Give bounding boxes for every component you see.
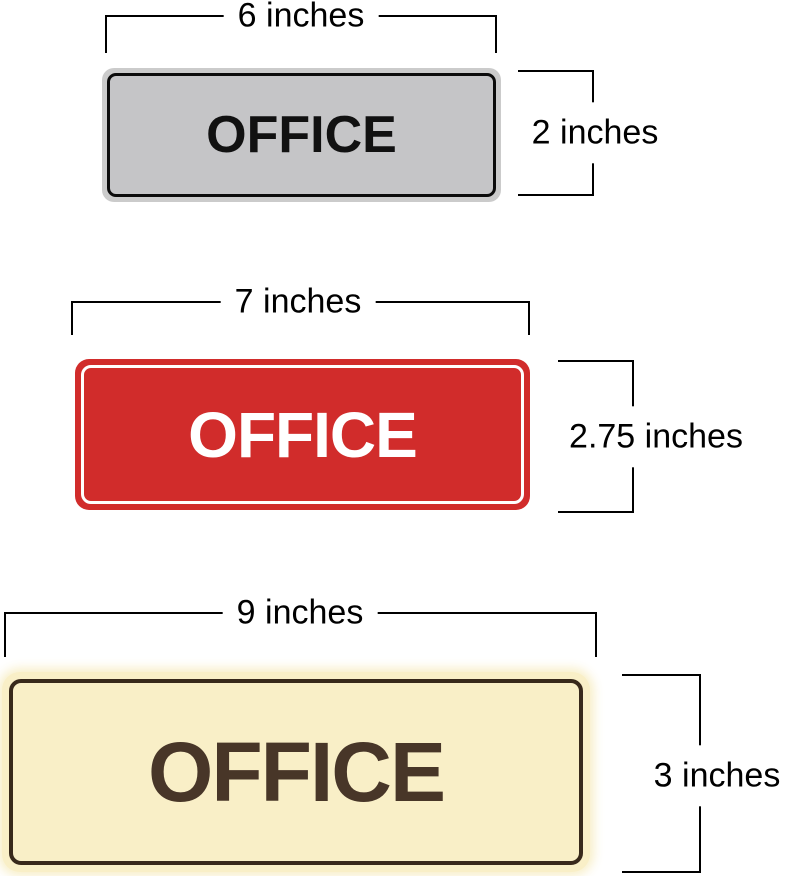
height-bracket-bottom-tick xyxy=(518,194,594,196)
product-dimension-figure: 6 inches OFFICE 2 inches 7 inches OFFICE… xyxy=(0,0,795,876)
office-sign-cream-face: OFFICE xyxy=(9,679,583,865)
width-bracket-right-tick xyxy=(595,612,597,657)
height-bracket-top-tick xyxy=(622,674,701,676)
height-bracket-top-tick xyxy=(558,360,634,362)
office-sign-gray-face: OFFICE xyxy=(107,73,496,197)
office-sign-red-text: OFFICE xyxy=(188,398,417,472)
width-bracket-right-tick xyxy=(528,301,530,335)
height-dimension-label: 2 inches xyxy=(526,102,665,163)
width-dimension-label: 6 inches xyxy=(224,0,379,35)
office-sign-gray: OFFICE xyxy=(102,68,501,202)
width-dimension-label: 9 inches xyxy=(223,594,378,631)
height-bracket-bottom-tick xyxy=(622,871,701,873)
office-sign-cream-text: OFFICE xyxy=(148,724,444,821)
office-sign-red: OFFICE xyxy=(75,359,530,510)
width-dimension-label: 7 inches xyxy=(221,283,376,320)
office-sign-cream: OFFICE xyxy=(2,672,590,872)
office-sign-red-face: OFFICE xyxy=(81,365,524,504)
width-bracket-right-tick xyxy=(495,15,497,53)
height-bracket-top-tick xyxy=(518,70,594,72)
height-dimension-label: 2.75 inches xyxy=(563,406,749,467)
height-bracket-bottom-tick xyxy=(558,511,634,513)
width-bracket-left-tick xyxy=(4,612,6,657)
width-bracket-left-tick xyxy=(105,15,107,53)
office-sign-gray-text: OFFICE xyxy=(206,105,397,165)
width-bracket-left-tick xyxy=(71,301,73,335)
height-dimension-label: 3 inches xyxy=(648,745,787,806)
